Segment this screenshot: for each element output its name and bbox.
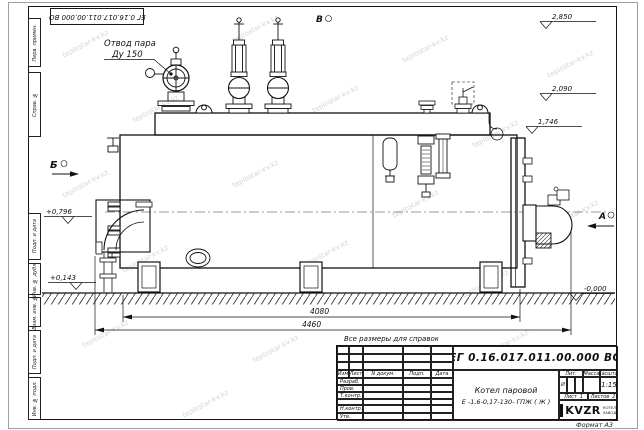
elevation-0796: +0,796	[46, 208, 72, 216]
tb-blank	[431, 405, 453, 413]
tb-col-data: Дата	[431, 370, 453, 378]
tb-blank	[363, 385, 403, 392]
tb-sheet: Лист 1	[559, 393, 588, 400]
tb-litera-2	[567, 377, 575, 393]
tb-sheets: Листов 2	[588, 393, 618, 400]
view-v-letter: В	[316, 15, 323, 25]
tb-litera-value: И	[559, 377, 567, 393]
sample-cooler	[383, 138, 397, 182]
tb-blank	[403, 405, 431, 413]
product-name-line2: Е -1,6-0,17-130- ГПЖ ( Ж )	[462, 398, 551, 406]
tb-row-prov: Пров.	[337, 385, 363, 392]
tb-blank	[403, 346, 431, 354]
tb-blank	[403, 378, 431, 385]
steam-outlet-valve	[146, 47, 195, 111]
logo-subtext: КОТЕЛЬНЫЙ ЗАВОД РЗР	[603, 406, 618, 414]
tb-blank	[349, 354, 363, 362]
tb-row-utv: Утв.	[337, 413, 363, 421]
kvzr-emblem-icon	[559, 404, 563, 417]
elevation-0000: -0,000	[584, 285, 607, 293]
tb-litera-label: Лит.	[559, 370, 583, 377]
elevation-1746: 1,746	[538, 118, 559, 126]
tb-blank	[431, 378, 453, 385]
safety-valve-2	[265, 18, 291, 113]
tb-row-tkontr: Т.контр.	[337, 392, 363, 399]
view-a-letter: А	[598, 212, 606, 222]
tb-col-list: Лист	[349, 370, 363, 378]
tb-mass-value	[583, 377, 600, 393]
tb-col-doc: N докум.	[363, 370, 403, 378]
drawing-sheet: teplostar-kv.kz teplostar-kv.kz teplosta…	[0, 0, 644, 430]
tb-blank	[431, 354, 453, 362]
tb-blank	[363, 405, 403, 413]
dimension-4080: 4080	[310, 307, 329, 316]
tb-blank	[431, 362, 453, 370]
tb-blank	[337, 354, 349, 362]
elevation-0143: +0,143	[50, 274, 76, 282]
tb-blank	[363, 378, 403, 385]
tb-row-nkontr: Н.контр.	[337, 405, 363, 413]
tb-blank	[431, 413, 453, 421]
tb-blank	[363, 392, 403, 399]
tb-blank	[337, 362, 349, 370]
steam-outlet-label-1: Отвод пара	[104, 39, 156, 49]
view-v-marker: В	[316, 15, 332, 25]
level-gauge-columns	[418, 134, 450, 197]
dimension-4460: 4460	[302, 320, 321, 329]
tb-blank	[363, 362, 403, 370]
tb-sheets-num: 2	[612, 394, 615, 400]
format-note: Формат А3	[576, 421, 613, 429]
tb-sheets-label: Листов	[591, 394, 610, 400]
tb-sheet-label: Лист	[564, 394, 577, 400]
tb-sheet-num: 1	[580, 394, 583, 400]
tb-blank	[431, 392, 453, 399]
tb-product-name: Котел паровой Е -1,6-0,17-130- ГПЖ ( Ж )	[453, 370, 559, 421]
tb-blank	[403, 362, 431, 370]
tb-blank	[349, 346, 363, 354]
product-name-line1: Котел паровой	[475, 386, 538, 395]
logo-text: KVZR	[565, 404, 600, 417]
elevation-2090: 2,090	[552, 85, 573, 93]
reference-note: Все размеры для справок	[344, 335, 464, 343]
tb-col-podp: Подп.	[403, 370, 431, 378]
tb-scale-value: 1:15	[600, 377, 618, 393]
view-b-marker: Б	[50, 160, 79, 177]
logo-sub2: ЗАВОД РЗР	[603, 411, 618, 415]
view-a-marker: А	[587, 212, 614, 229]
tb-blank	[403, 392, 431, 399]
tb-blank	[363, 346, 403, 354]
tb-mass-label: Масса	[583, 370, 600, 377]
tb-doc-number: ЕГ 0.16.017.011.00.000 ВО	[453, 346, 618, 370]
safety-valve-1	[226, 18, 252, 113]
view-b-letter: Б	[50, 160, 58, 171]
tb-blank	[403, 413, 431, 421]
manhole	[186, 249, 210, 267]
tb-blank	[403, 385, 431, 392]
company-logo: KVZR КОТЕЛЬНЫЙ ЗАВОД РЗР	[559, 404, 618, 417]
tb-blank	[349, 362, 363, 370]
steam-outlet-label-2: Ду 150	[111, 50, 143, 60]
boiler-shell	[120, 113, 525, 287]
tb-blank	[363, 354, 403, 362]
tb-col-izm: Изм	[337, 370, 349, 378]
steam-outlet-leader	[104, 60, 172, 76]
tb-row-razrab: Разраб.	[337, 378, 363, 385]
tb-blank	[403, 354, 431, 362]
tb-litera-3	[575, 377, 583, 393]
tb-blank	[431, 385, 453, 392]
title-block: Изм Лист N докум. Подп. Дата Разраб. Про…	[336, 345, 617, 420]
tb-logo-cell: KVZR КОТЕЛЬНЫЙ ЗАВОД РЗР	[559, 400, 618, 421]
tb-blank	[337, 346, 349, 354]
ground-line	[42, 293, 615, 305]
tb-blank	[363, 413, 403, 421]
tb-blank	[431, 346, 453, 354]
burner	[523, 187, 572, 248]
elevation-2850: 2,850	[552, 13, 573, 21]
tb-scale-label: Масштаб	[600, 370, 618, 377]
